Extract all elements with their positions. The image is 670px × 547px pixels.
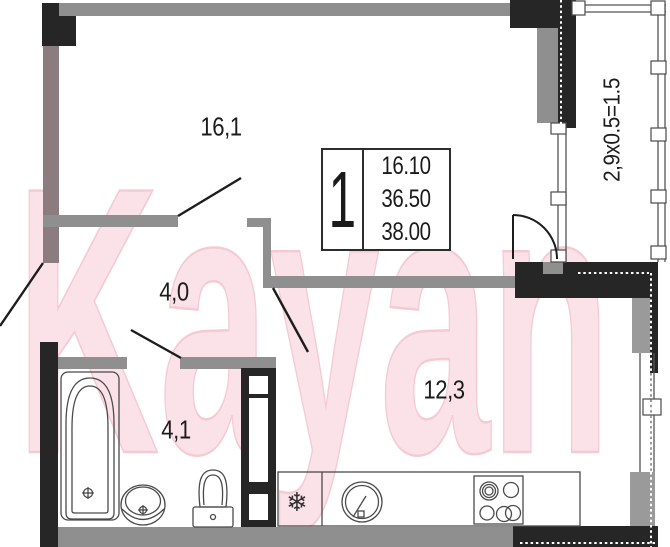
wall-bathroom-top-2	[180, 357, 276, 369]
wall-left-upper	[43, 46, 59, 263]
area-value-row: 36.50	[364, 183, 449, 216]
wall-bottom-gray	[58, 527, 513, 547]
vent-shaft	[241, 368, 276, 527]
room-label-bathroom: 4,1	[161, 415, 190, 446]
wall-mid-right	[515, 262, 658, 298]
area-value-1: 16.10	[382, 152, 431, 181]
wall-top	[59, 3, 510, 16]
area-value-2: 36.50	[382, 185, 431, 214]
watermark-text: Kayan	[16, 108, 611, 535]
wall-hall-kitchen	[263, 276, 517, 288]
wall-bathroom-top-1	[58, 357, 127, 369]
wall-left-lower	[40, 342, 58, 547]
area-value-row: 38.00	[364, 216, 449, 249]
room-label-living: 16,1	[200, 112, 241, 143]
rooms-count-value: 1	[329, 160, 357, 240]
balcony-dimension-label: 2,9x0.5=1.5	[599, 78, 626, 182]
floor-plan-drawing: Kayan	[0, 0, 670, 547]
wall-pier	[537, 28, 558, 123]
apartment-info-table: 1 16.10 36.50 38.00	[321, 148, 451, 251]
area-value-3: 38.00	[382, 218, 431, 247]
floor-plan: Kayan	[0, 0, 670, 547]
room-label-hallway: 4,0	[159, 277, 188, 308]
wall-door-stub	[543, 262, 563, 274]
area-value-row: 16.10	[364, 150, 449, 183]
rooms-count-cell: 1	[323, 150, 364, 249]
fridge-snowflake-icon: ❄	[286, 488, 308, 518]
wall-window-pier-top	[632, 298, 650, 353]
wall-living-hall	[43, 215, 178, 227]
room-label-kitchen: 12,3	[423, 375, 464, 406]
